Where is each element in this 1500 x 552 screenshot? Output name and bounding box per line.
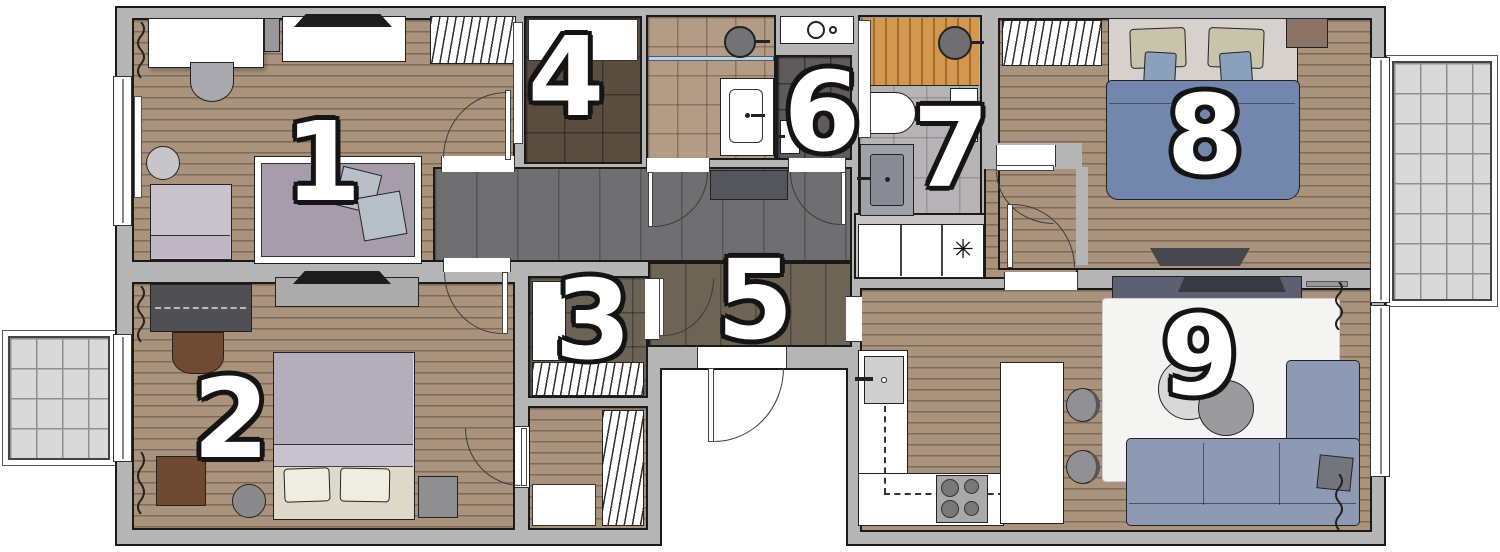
tv-icon	[293, 271, 391, 284]
shower-glass-panel	[648, 56, 774, 61]
wall-pillar	[264, 18, 280, 52]
balcony-right-deck	[1392, 61, 1492, 301]
radiator-icon	[1333, 474, 1345, 530]
closet-lower-wardrobe-icon	[602, 410, 644, 526]
bed-blanket-fold	[151, 235, 230, 258]
shower-arm	[970, 41, 984, 44]
radiator-panel	[134, 96, 142, 198]
burner	[941, 479, 959, 497]
radiator-icon	[135, 452, 147, 514]
desk	[148, 18, 264, 68]
sofa-seam	[1203, 443, 1204, 505]
dresser-low	[1150, 248, 1250, 266]
balcony-right	[1386, 55, 1498, 307]
opening-hall-kitchen	[846, 296, 862, 342]
burner	[941, 500, 959, 518]
bed-duvet-fold	[274, 445, 413, 467]
bed-duvet	[274, 353, 413, 445]
balcony-left	[2, 330, 116, 466]
desk	[150, 284, 252, 332]
nightstand	[418, 476, 458, 518]
window-room9-right	[1370, 305, 1390, 477]
window-pane-line	[122, 79, 124, 223]
bar-stool	[1066, 450, 1100, 484]
door-opening-room1	[441, 156, 515, 172]
balcony-door-room8	[1370, 57, 1390, 303]
nightstand	[1286, 18, 1328, 48]
door-leaf-room2	[502, 272, 508, 334]
door-opening-kitchen	[1004, 272, 1078, 290]
tv-icon	[294, 14, 392, 27]
appliance-cabinet-row: ✳	[858, 224, 984, 278]
wall-patch-vestibule	[1076, 167, 1088, 265]
kitchen-sink	[864, 356, 904, 404]
room-label-1: 1	[263, 102, 383, 222]
sofa-chaise	[1286, 360, 1360, 444]
radiator-icon	[135, 22, 147, 82]
shower-head-icon	[724, 26, 756, 58]
kitchen-island	[1000, 362, 1064, 524]
basin-icon	[807, 21, 825, 39]
radiator-icon	[135, 286, 147, 344]
window-room1-left	[113, 76, 132, 226]
room-label-7: 7	[891, 88, 1011, 208]
burner	[964, 501, 979, 516]
desk-chair	[190, 62, 234, 102]
closet-lower-open-area	[532, 484, 596, 526]
room-label-6: 6	[762, 52, 882, 172]
room-label-3: 3	[533, 260, 653, 380]
shower-head-icon	[938, 26, 972, 60]
window-pane-line	[1380, 308, 1382, 474]
wardrobe-icon	[1002, 20, 1102, 66]
faucet-dot	[885, 177, 890, 182]
pouf	[232, 484, 266, 518]
balcony-door-room2	[113, 334, 132, 462]
counter-outline-dashed	[884, 406, 886, 494]
appliance-symbol: ✳	[943, 235, 983, 265]
cistern-shelf	[780, 16, 854, 44]
burner	[964, 479, 979, 494]
corridor-sideboard	[710, 170, 788, 200]
tap-icon	[829, 26, 837, 34]
room-label-2: 2	[171, 359, 291, 479]
single-bed	[150, 184, 232, 260]
room-label-5: 5	[695, 240, 815, 360]
room-label-9: 9	[1140, 296, 1260, 416]
door-leaf-closet-lower	[521, 428, 527, 486]
radiator-icon	[1333, 282, 1345, 330]
room-label-8: 8	[1145, 75, 1265, 195]
pillow	[340, 468, 391, 503]
sofa-seam	[1279, 443, 1280, 505]
window-pane-line	[1380, 60, 1382, 300]
room-label-4: 4	[506, 17, 626, 137]
door-opening-room2	[443, 258, 511, 272]
tv-icon	[1178, 277, 1286, 292]
faucet-dot	[745, 113, 750, 118]
sofa-back-line	[1129, 503, 1356, 504]
faucet-dot	[881, 377, 887, 383]
window-pane-line	[122, 337, 124, 459]
door-opening-bath6-left	[646, 158, 710, 172]
faucet-bar	[855, 377, 873, 381]
faucet-bar	[857, 177, 871, 180]
balcony-left-deck	[8, 336, 110, 460]
stool	[146, 146, 180, 180]
stove	[936, 475, 988, 523]
shower-arm	[754, 40, 770, 43]
wardrobe-icon	[430, 16, 516, 64]
floor-plan-canvas: ✳	[0, 0, 1500, 552]
cabinet-divider	[900, 225, 902, 276]
desk-dashed-line	[155, 307, 246, 309]
bar-stool	[1066, 388, 1100, 422]
door-leaf-room6	[841, 172, 846, 225]
